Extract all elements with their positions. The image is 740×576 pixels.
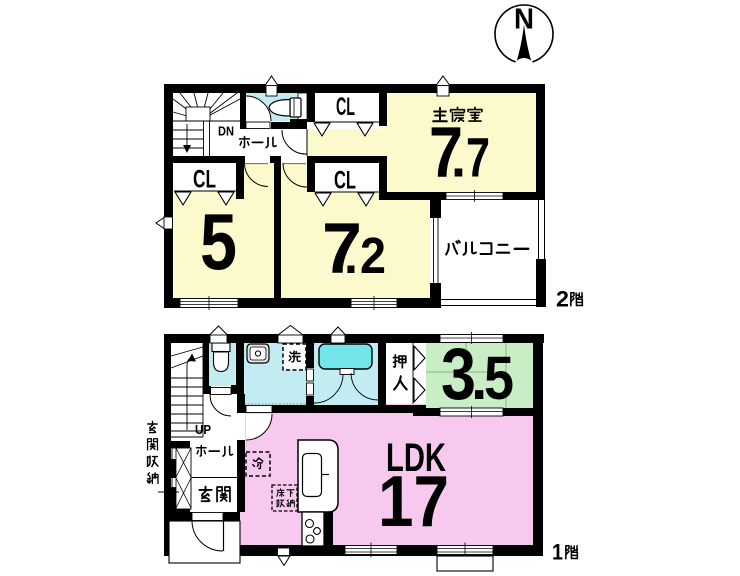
svg-text:.: . <box>451 129 466 189</box>
svg-text:.: . <box>344 228 358 284</box>
svg-text:DN: DN <box>218 124 234 139</box>
svg-text:17: 17 <box>378 462 449 542</box>
svg-text:CL: CL <box>336 93 355 121</box>
svg-text:UP: UP <box>195 422 211 437</box>
svg-text:7: 7 <box>466 126 490 189</box>
svg-text:CL: CL <box>334 167 356 195</box>
svg-text:CL: CL <box>193 166 216 194</box>
svg-text:1: 1 <box>552 540 563 565</box>
svg-text:2: 2 <box>360 227 386 284</box>
svg-text:5: 5 <box>200 197 237 286</box>
svg-text:2: 2 <box>556 287 569 312</box>
svg-text:5: 5 <box>484 344 514 412</box>
